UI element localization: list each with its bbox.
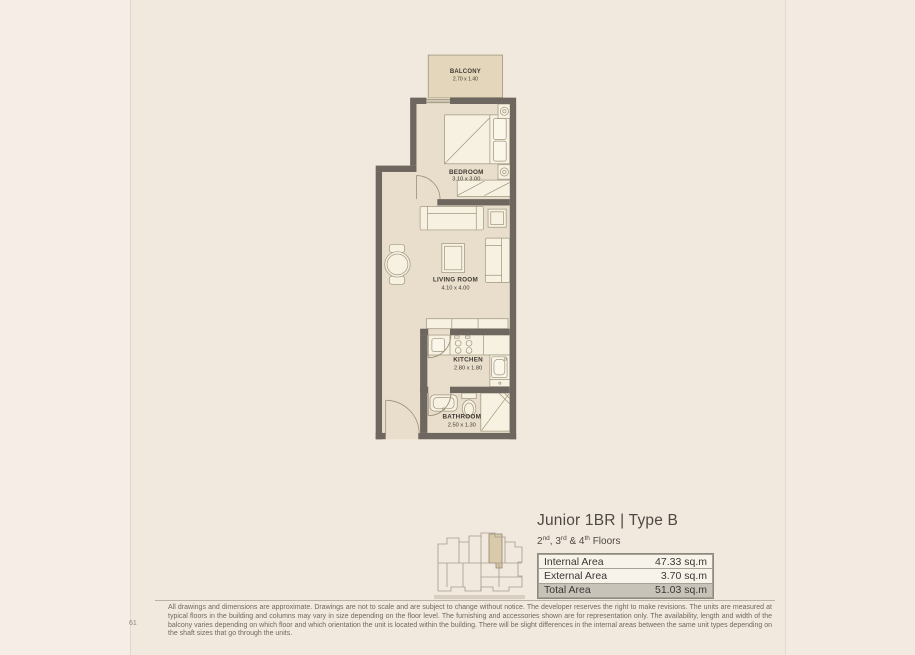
- footer-rule: [155, 600, 775, 601]
- nightstand-icon: [498, 104, 511, 118]
- room-dims-balcony: 2.70 x 1.40: [453, 76, 478, 82]
- sofa-icon: [420, 206, 483, 230]
- page-edge-left: [0, 0, 131, 655]
- disclaimer-text: All drawings and dimensions are approxim…: [168, 604, 772, 639]
- room-dims-bedroom: 3.10 x 3.00: [452, 177, 480, 183]
- floor-plan: BALCONY 2.70 x 1.40: [360, 46, 540, 490]
- balcony-sliding-door: [426, 98, 450, 104]
- bed-icon: [445, 115, 510, 164]
- page-edge-right: [785, 0, 915, 655]
- area-row-external: External Area 3.70 sq.m: [539, 569, 712, 582]
- pillow-icon: [493, 118, 506, 139]
- area-row-total: Total Area 51.03 sq.m: [539, 584, 712, 597]
- keyplan-ground-line: [434, 595, 525, 599]
- shower-icon: [481, 393, 510, 431]
- tv-cabinet-icon: [426, 319, 508, 329]
- area-label: External Area: [544, 570, 607, 582]
- area-value: 51.03 sq.m: [655, 584, 707, 596]
- coffee-table-icon: [442, 244, 465, 273]
- area-row-internal: Internal Area 47.33 sq.m: [539, 555, 712, 568]
- room-label-kitchen: KITCHEN: [453, 356, 483, 363]
- room-dims-living-room: 4.10 x 4.00: [441, 285, 469, 291]
- room-label-living-room: LIVING ROOM: [433, 277, 478, 284]
- page-number: 61: [129, 620, 137, 627]
- balcony-area: BALCONY 2.70 x 1.40: [428, 55, 502, 98]
- building-key-plan: [432, 529, 527, 601]
- room-label-balcony: BALCONY: [450, 69, 481, 75]
- area-table: Internal Area 47.33 sq.m External Area 3…: [537, 553, 714, 599]
- lounge-chair-icon: [485, 238, 509, 282]
- room-dims-kitchen: 2.80 x 1.80: [454, 365, 482, 371]
- nightstand-icon: [498, 165, 511, 179]
- brochure-page: { "colors": { "page_background": "#f1e9d…: [0, 0, 915, 655]
- unit-info-panel: Junior 1BR | Type B 2nd, 3rd & 4th Floor…: [537, 512, 714, 599]
- area-label: Total Area: [544, 584, 591, 596]
- room-label-bathroom: BATHROOM: [442, 413, 481, 420]
- unit-title: Junior 1BR | Type B: [537, 512, 714, 530]
- room-label-bedroom: BEDROOM: [449, 169, 484, 176]
- kitchen-sink-icon: [490, 355, 510, 387]
- building-outline: [438, 533, 522, 591]
- room-dims-bathroom: 2.50 x 1.30: [448, 423, 476, 429]
- vanity-sink-icon: [430, 395, 457, 411]
- side-table-icon: [488, 209, 506, 227]
- area-value: 47.33 sq.m: [655, 556, 707, 568]
- pillow-icon: [493, 141, 506, 161]
- unit-floors: 2nd, 3rd & 4th Floors: [537, 535, 714, 547]
- area-label: Internal Area: [544, 556, 604, 568]
- area-value: 3.70 sq.m: [661, 570, 707, 582]
- appliance-icon: [432, 339, 445, 352]
